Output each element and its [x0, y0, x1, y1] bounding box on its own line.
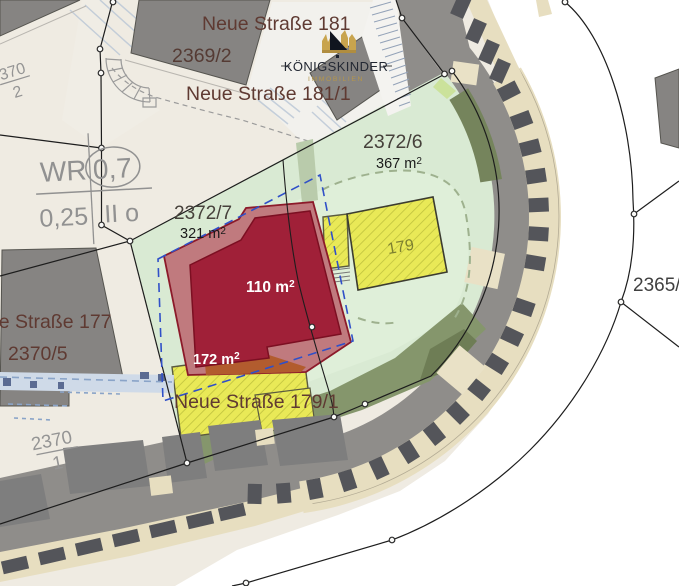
- svg-text:2369/2: 2369/2: [172, 45, 232, 67]
- svg-text:Neue Straße 181/1: Neue Straße 181/1: [186, 83, 351, 105]
- svg-text:Neue Straße 181: Neue Straße 181: [202, 13, 351, 35]
- svg-text:2370/5: 2370/5: [8, 343, 68, 365]
- svg-text:KÖNIGSKINDER: KÖNIGSKINDER: [284, 59, 388, 74]
- svg-text:WR: WR: [39, 154, 87, 187]
- svg-text:2372/7: 2372/7: [174, 203, 232, 224]
- svg-text:Neue Straße 177: Neue Straße 177: [0, 311, 112, 333]
- svg-text:2365/: 2365/: [633, 275, 679, 296]
- svg-text:2372/6: 2372/6: [363, 131, 423, 153]
- svg-text:172 m2: 172 m2: [193, 351, 240, 368]
- svg-text:Neue Straße 179/1: Neue Straße 179/1: [174, 391, 339, 413]
- svg-text:II o: II o: [104, 199, 140, 229]
- svg-text:0,25: 0,25: [39, 202, 89, 233]
- svg-text:321 m2: 321 m2: [180, 226, 226, 242]
- svg-text:367 m2: 367 m2: [376, 156, 422, 172]
- svg-text:IMMOBILIEN: IMMOBILIEN: [308, 76, 364, 83]
- svg-text:110 m2: 110 m2: [246, 279, 295, 296]
- svg-text:0,7: 0,7: [92, 152, 133, 185]
